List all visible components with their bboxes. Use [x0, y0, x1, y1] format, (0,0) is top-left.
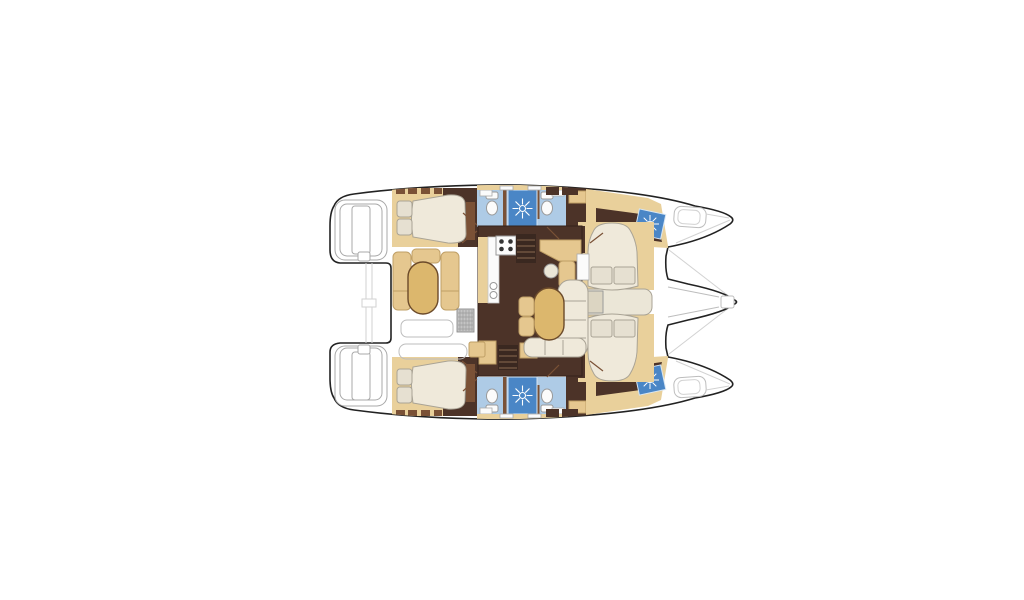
bed-pillow: [614, 320, 635, 337]
floorplan-canvas: [0, 0, 1024, 600]
nav-table: [577, 254, 589, 280]
bed-pillow: [397, 369, 412, 385]
bed-pillow: [591, 267, 612, 284]
deck-hatch: [528, 186, 541, 190]
stove-icon: [496, 236, 516, 255]
companionway-steps-stbd: [498, 345, 518, 370]
head-wall: [503, 189, 507, 227]
galley-counter-tan: [478, 237, 488, 303]
hull-hatch: [546, 187, 559, 195]
cockpit-locker: [469, 342, 485, 357]
bed-pillow: [591, 320, 612, 337]
toilet-icon: [541, 192, 553, 215]
deck-hatch: [500, 414, 513, 418]
interior-layout: [392, 185, 668, 419]
head-wall: [503, 377, 507, 415]
vanity-sink: [480, 190, 492, 196]
toilet-icon: [541, 389, 553, 412]
bed-pillow: [397, 387, 412, 403]
bed-pillow: [397, 219, 412, 235]
catamaran-floorplan: [0, 0, 1024, 600]
hull-hatch: [546, 409, 559, 417]
deck-hatch: [500, 186, 513, 190]
davit-lines: [362, 263, 376, 343]
hull-hatch: [562, 409, 578, 417]
hull-hatch: [562, 187, 578, 195]
shower-port: [508, 190, 537, 227]
galley-sink: [490, 283, 497, 290]
vanity-sink: [480, 408, 492, 414]
cockpit-table: [408, 262, 438, 314]
galley-sink: [490, 292, 497, 299]
cockpit-grate: [457, 309, 474, 332]
deck-hatch: [528, 414, 541, 418]
shower-stbd: [508, 377, 537, 414]
bed-pillow: [614, 267, 635, 284]
dining-table: [534, 288, 564, 340]
salon-stool: [544, 264, 558, 278]
aft-bed-port: [412, 195, 467, 243]
bed-pillow: [397, 201, 412, 217]
companionway-steps-port: [516, 234, 536, 263]
aft-bed-stbd: [412, 361, 467, 409]
